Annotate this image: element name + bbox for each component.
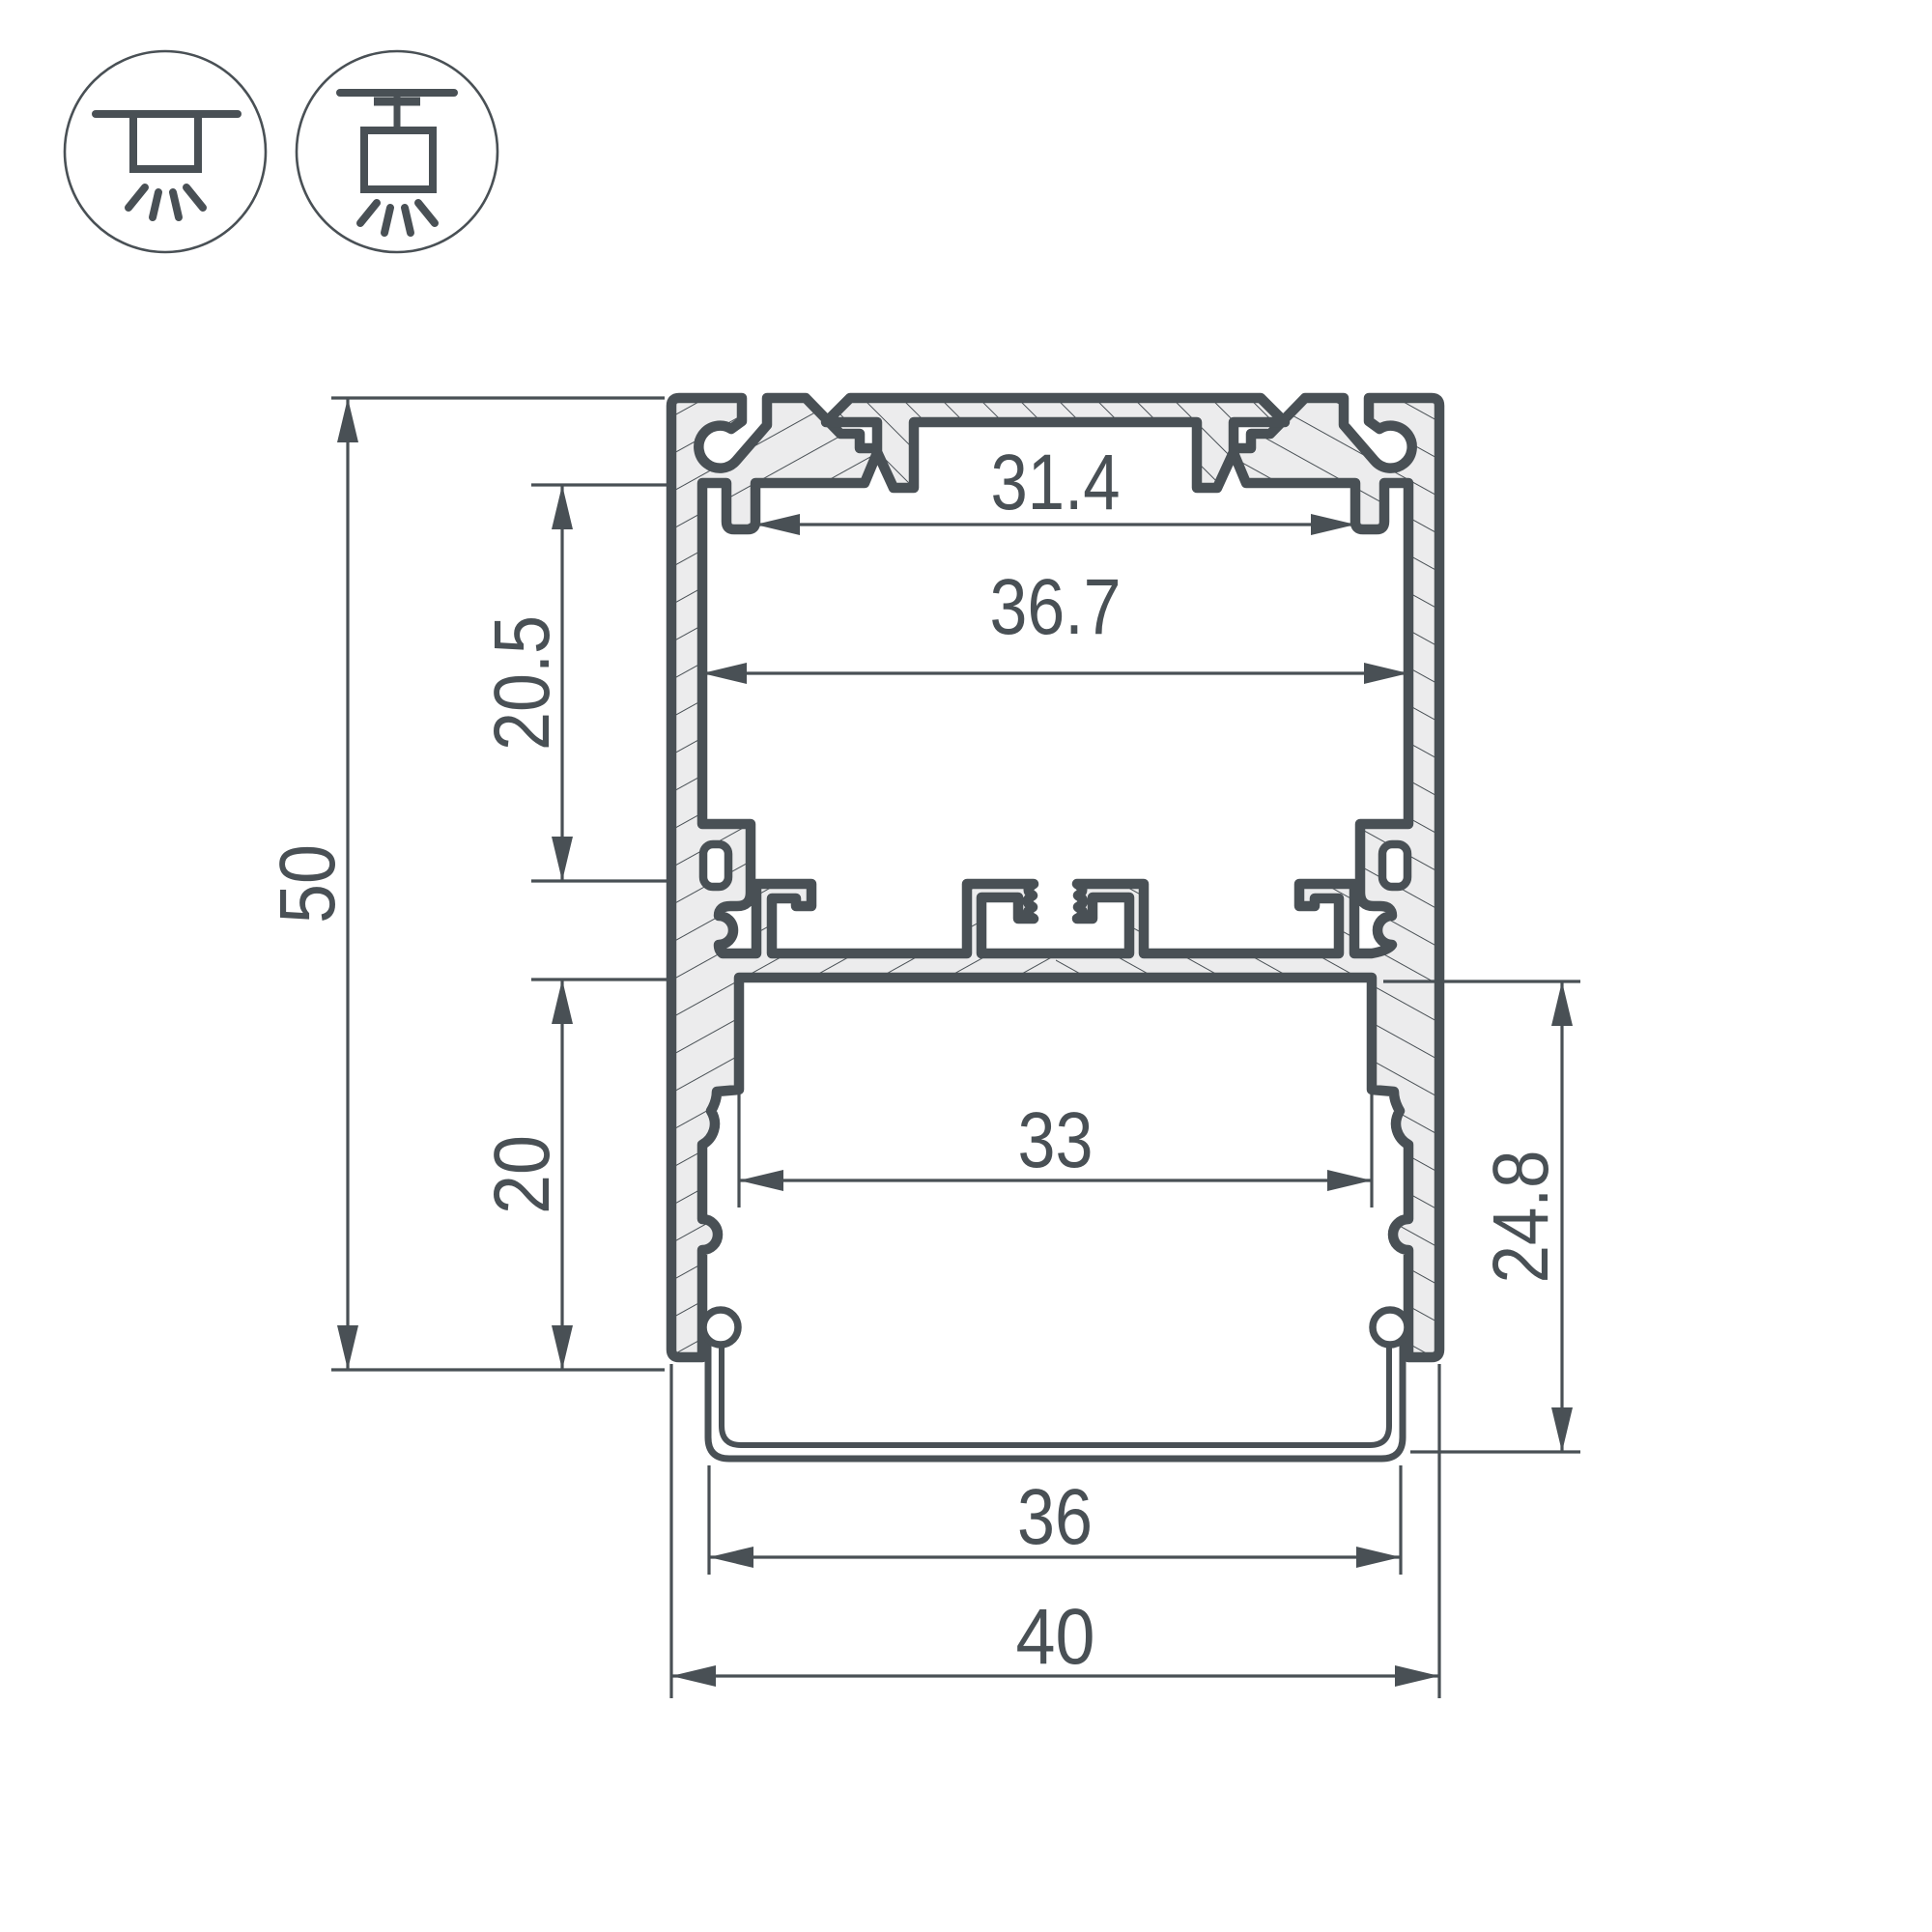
svg-text:36: 36 (1017, 1473, 1093, 1561)
svg-text:40: 40 (1016, 1593, 1095, 1681)
svg-text:33: 33 (1018, 1096, 1094, 1184)
svg-text:50: 50 (264, 844, 352, 923)
svg-text:36.7: 36.7 (990, 563, 1122, 651)
svg-text:20.5: 20.5 (478, 615, 566, 751)
svg-text:24.8: 24.8 (1477, 1151, 1565, 1284)
svg-text:20: 20 (478, 1135, 566, 1214)
svg-text:31.4: 31.4 (991, 439, 1121, 526)
